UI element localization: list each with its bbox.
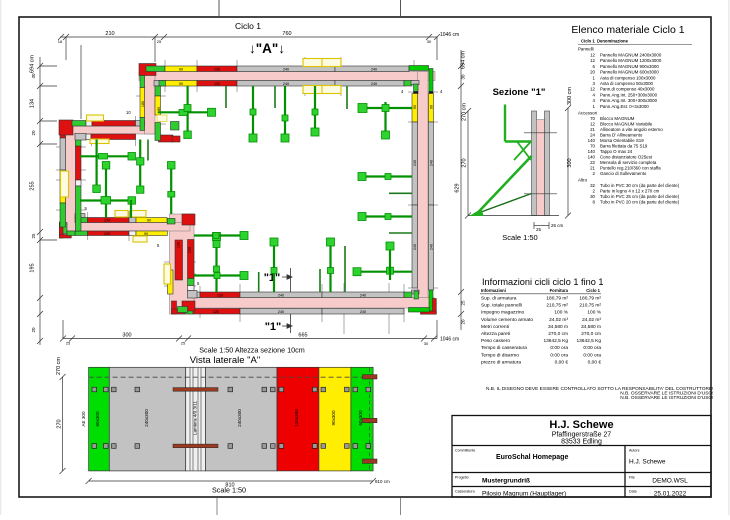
svg-text:210: 210 (105, 31, 114, 37)
svg-text:25: 25 (157, 39, 162, 44)
svg-text:120: 120 (104, 219, 110, 223)
svg-text:Altezza pareti: Altezza pareti (481, 331, 510, 337)
svg-text:270: 270 (462, 158, 468, 167)
svg-text:120: 120 (104, 232, 110, 236)
svg-text:21: 21 (590, 127, 595, 132)
svg-text:120: 120 (217, 293, 223, 297)
svg-text:32: 32 (590, 183, 595, 188)
svg-text:Pilosio Magnum (Hauptlager): Pilosio Magnum (Hauptlager) (482, 491, 566, 498)
svg-text:25: 25 (181, 341, 186, 346)
svg-text:240: 240 (413, 244, 417, 250)
svg-text:Pannello MAGNUM 900x3000: Pannello MAGNUM 900x3000 (600, 64, 659, 69)
svg-text:240: 240 (360, 293, 366, 297)
svg-text:83533 Edling: 83533 Edling (561, 439, 602, 446)
svg-text:Autore: Autore (629, 449, 640, 453)
svg-text:90: 90 (430, 105, 434, 109)
svg-text:0:00 ora: 0:00 ora (583, 345, 601, 351)
svg-text:Pfaffingerstraße 27: Pfaffingerstraße 27 (552, 432, 612, 439)
svg-text:30: 30 (31, 73, 36, 79)
svg-text:1046 cm: 1046 cm (440, 337, 459, 343)
svg-text:70: 70 (590, 116, 595, 121)
svg-text:Morsa Orientabile S19: Morsa Orientabile S19 (600, 138, 644, 143)
svg-text:270,0 cm: 270,0 cm (581, 331, 601, 337)
svg-text:Tappo O max 24: Tappo O max 24 (600, 149, 633, 154)
svg-text:Progetto: Progetto (455, 476, 469, 480)
svg-text:270,0 cm: 270,0 cm (548, 331, 568, 337)
svg-text:90: 90 (144, 232, 148, 236)
svg-text:12: 12 (590, 53, 595, 58)
svg-text:140: 140 (588, 149, 596, 154)
svg-text:240: 240 (371, 67, 377, 71)
svg-text:300: 300 (122, 333, 131, 339)
svg-text:N.B. OSSERVARE LE ISTRUZIONI D: N.B. OSSERVARE LE ISTRUZIONI D'USO! (620, 395, 713, 401)
svg-text:12: 12 (590, 58, 595, 63)
svg-text:Puntello reg.210/360 con staff: Puntello reg.210/360 con staffa (600, 166, 661, 171)
svg-text:Barra filettata da 75 S19: Barra filettata da 75 S19 (600, 144, 648, 149)
svg-text:File: File (629, 476, 635, 480)
svg-text:↓"A"↓: ↓"A"↓ (249, 41, 285, 56)
svg-text:Casseratura: Casseratura (455, 490, 475, 494)
svg-text:"1": "1" (265, 321, 282, 333)
svg-text:134: 134 (30, 99, 36, 108)
svg-text:Sup. totale pannelli: Sup. totale pannelli (481, 303, 522, 309)
svg-text:180: 180 (141, 101, 145, 107)
svg-text:Data: Data (629, 490, 637, 494)
svg-text:Gancio di Sollevamento: Gancio di Sollevamento (600, 171, 647, 176)
svg-text:Impegno magazzino: Impegno magazzino (481, 310, 525, 316)
svg-text:Vista laterale "A": Vista laterale "A" (190, 355, 260, 366)
svg-text:Scale 1:50 Altezza sezione 1: Scale 1:50 Altezza sezione 10cm (199, 346, 304, 355)
svg-text:255: 255 (30, 181, 36, 190)
svg-text:Sezione "1": Sezione "1" (493, 87, 546, 98)
svg-text:Metri correnti: Metri correnti (481, 324, 509, 330)
svg-text:30: 30 (424, 341, 429, 346)
svg-text:Fornitura: Fornitura (550, 288, 569, 293)
svg-text:240: 240 (371, 82, 377, 86)
svg-text:13642,5 Kg: 13642,5 Kg (543, 338, 568, 344)
svg-text:EuroSchal Homepage: EuroSchal Homepage (496, 454, 568, 461)
svg-text:Altro: Altro (578, 178, 588, 183)
svg-text:240: 240 (430, 244, 434, 250)
svg-text:24,02 m³: 24,02 m³ (549, 317, 568, 323)
svg-text:Ciclo 1: Ciclo 1 (586, 288, 600, 293)
svg-text:90: 90 (179, 82, 183, 86)
svg-text:240: 240 (278, 293, 284, 297)
svg-text:300: 300 (567, 158, 573, 167)
svg-text:Lamiera 4/0.3/11: Lamiera 4/0.3/11 (193, 400, 198, 435)
svg-text:70: 70 (590, 144, 595, 149)
svg-text:1046 cm: 1046 cm (440, 32, 459, 38)
svg-text:Sup. di armatura: Sup. di armatura (481, 296, 517, 302)
svg-text:Pannello MAGNUM 600x3000: Pannello MAGNUM 600x3000 (600, 70, 659, 75)
svg-text:34,580 m: 34,580 m (548, 324, 568, 330)
svg-text:100 %: 100 % (554, 310, 568, 316)
svg-text:120x300: 120x300 (294, 409, 299, 427)
svg-text:Blocco MAGNUM: Blocco MAGNUM (600, 116, 635, 121)
svg-text:240: 240 (278, 310, 284, 314)
svg-text:90: 90 (147, 219, 151, 223)
svg-text:Pann.Ang.Int. 250+300x3000: Pann.Ang.Int. 250+300x3000 (600, 92, 658, 97)
svg-text:Informazioni: Informazioni (481, 288, 506, 293)
svg-text:810 cm: 810 cm (375, 479, 390, 484)
svg-text:25: 25 (461, 300, 466, 306)
svg-text:760: 760 (282, 31, 291, 37)
svg-text:Tubo in PVC 30 cm (da parte de: Tubo in PVC 30 cm (da parte del cliente) (600, 183, 680, 188)
svg-text:24,02 m³: 24,02 m³ (582, 317, 601, 323)
svg-text:60x300: 60x300 (95, 411, 100, 427)
svg-text:240: 240 (283, 82, 289, 86)
svg-text:Ciclo 1: Ciclo 1 (235, 21, 261, 31)
svg-text:120: 120 (188, 247, 192, 253)
svg-text:24: 24 (590, 133, 595, 138)
svg-text:34,580 m: 34,580 m (581, 324, 601, 330)
svg-text:90: 90 (413, 105, 417, 109)
svg-text:270 cm: 270 cm (462, 103, 468, 121)
svg-text:30: 30 (590, 194, 595, 199)
svg-text:H.J. Schewe: H.J. Schewe (629, 459, 666, 466)
svg-text:10: 10 (126, 110, 131, 115)
svg-text:Parte in legno 4 x 12 x 270 cm: Parte in legno 4 x 12 x 270 cm (600, 189, 660, 194)
svg-text:240: 240 (360, 310, 366, 314)
svg-text:Barra D' Allineamento: Barra D' Allineamento (600, 133, 643, 138)
svg-text:Cono distanziatore O25est: Cono distanziatore O25est (600, 155, 653, 160)
svg-text:30: 30 (461, 74, 466, 80)
svg-text:210,75 m²: 210,75 m² (579, 303, 601, 309)
svg-text:0,00 €: 0,00 € (555, 359, 569, 365)
svg-text:13642,5 Kg: 13642,5 Kg (576, 338, 601, 344)
svg-text:Informazioni cicli ciclo 1 fi: Informazioni cicli ciclo 1 fino 1 (482, 277, 604, 287)
svg-text:Allineatore a vite angolo este: Allineatore a vite angolo esterno (600, 127, 663, 132)
svg-text:Asta di compenso 100x3000: Asta di compenso 100x3000 (600, 75, 656, 80)
svg-text:Pannello MAGNUM 2400x3000: Pannello MAGNUM 2400x3000 (600, 53, 662, 58)
svg-text:Pann.di compenso 40x3000: Pann.di compenso 40x3000 (600, 87, 655, 92)
svg-text:694 cm: 694 cm (30, 55, 36, 73)
svg-text:240x300: 240x300 (237, 409, 242, 427)
svg-text:Tempo di casseratura: Tempo di casseratura (481, 345, 527, 351)
svg-text:90: 90 (179, 67, 183, 71)
svg-text:Asta di compenso 50x3000: Asta di compenso 50x3000 (600, 81, 654, 86)
svg-text:0:00 ora: 0:00 ora (583, 352, 601, 358)
svg-text:Accessori: Accessori (578, 111, 597, 116)
svg-text:22: 22 (590, 160, 595, 165)
svg-text:25 cm: 25 cm (551, 223, 564, 228)
svg-text:prezzo di armatura: prezzo di armatura (481, 359, 521, 365)
svg-text:30: 30 (427, 39, 432, 44)
svg-text:665: 665 (298, 333, 307, 339)
svg-text:25.01.2022: 25.01.2022 (654, 491, 687, 498)
svg-text:25: 25 (66, 341, 71, 346)
svg-text:270 cm: 270 cm (56, 357, 62, 375)
svg-text:180,79 m²: 180,79 m² (579, 296, 601, 302)
svg-text:240: 240 (283, 67, 289, 71)
svg-text:21: 21 (590, 166, 595, 171)
svg-text:Volume cemento armato: Volume cemento armato (481, 317, 533, 323)
svg-text:25: 25 (31, 233, 36, 239)
svg-text:240: 240 (430, 160, 434, 166)
svg-text:120: 120 (177, 242, 181, 248)
svg-text:Denominazione: Denominazione (597, 39, 629, 44)
svg-text:AE 300: AE 300 (81, 411, 86, 427)
svg-text:Scale 1:50: Scale 1:50 (502, 233, 537, 242)
svg-text:20: 20 (31, 327, 36, 333)
svg-text:Pann.Ang.Int. 300+300x3000: Pann.Ang.Int. 300+300x3000 (600, 98, 658, 103)
svg-text:Peso cassero: Peso cassero (481, 338, 510, 344)
svg-text:120: 120 (214, 82, 220, 86)
svg-text:Tubo in PVC 20 cm (da parte de: Tubo in PVC 20 cm (da parte del cliente) (600, 200, 680, 205)
svg-text:Committente: Committente (455, 449, 475, 453)
svg-text:12: 12 (590, 122, 595, 127)
svg-text:16: 16 (58, 39, 63, 44)
svg-text:180,79 m²: 180,79 m² (546, 296, 568, 302)
svg-text:Ciclo 1: Ciclo 1 (581, 39, 595, 44)
svg-text:210,75 m²: 210,75 m² (546, 303, 568, 309)
svg-text:Mensola di servizio completa: Mensola di servizio completa (600, 160, 657, 165)
svg-text:240x300: 240x300 (144, 409, 149, 427)
svg-text:12: 12 (590, 87, 595, 92)
svg-text:100 %: 100 % (587, 310, 601, 316)
svg-text:20: 20 (31, 130, 36, 136)
svg-text:270: 270 (57, 419, 63, 428)
svg-text:120: 120 (214, 67, 220, 71)
svg-text:20: 20 (461, 319, 466, 325)
svg-text:Mustergrundriß: Mustergrundriß (482, 478, 530, 485)
svg-text:Pannello MAGNUM 1200x3000: Pannello MAGNUM 1200x3000 (600, 58, 662, 63)
svg-text:DEMO.WSL: DEMO.WSL (652, 478, 688, 485)
svg-text:Tempo di disarmo: Tempo di disarmo (481, 352, 519, 358)
svg-text:Elenco materiale Ciclo 1: Elenco materiale Ciclo 1 (571, 24, 684, 36)
svg-text:60x300: 60x300 (358, 410, 363, 426)
svg-text:694 cm: 694 cm (461, 51, 467, 69)
svg-text:H.J. Schewe: H.J. Schewe (549, 419, 613, 431)
svg-text:629: 629 (455, 183, 461, 192)
svg-text:140: 140 (588, 138, 596, 143)
svg-text:Pann.Ang.Est. 0+3x3000: Pann.Ang.Est. 0+3x3000 (600, 104, 649, 109)
svg-text:0:00 ora: 0:00 ora (550, 352, 568, 358)
svg-text:Scale 1:50: Scale 1:50 (212, 486, 246, 495)
svg-text:140: 140 (588, 155, 596, 160)
svg-text:Pannelli: Pannelli (578, 47, 594, 52)
svg-text:90x300: 90x300 (331, 410, 336, 426)
svg-text:0,00 €: 0,00 € (588, 359, 602, 365)
svg-text:300 cm: 300 cm (567, 87, 573, 105)
svg-text:Blocco MAGNUM Variabile: Blocco MAGNUM Variabile (600, 122, 653, 127)
svg-text:0:00 ora: 0:00 ora (550, 345, 568, 351)
svg-text:Tubo in PVC 25 cm (da parte de: Tubo in PVC 25 cm (da parte del cliente) (600, 194, 680, 199)
svg-text:195: 195 (30, 263, 36, 272)
svg-text:25: 25 (536, 227, 542, 232)
svg-text:240: 240 (413, 160, 417, 166)
svg-text:20: 20 (590, 70, 595, 75)
svg-text:120: 120 (213, 310, 219, 314)
